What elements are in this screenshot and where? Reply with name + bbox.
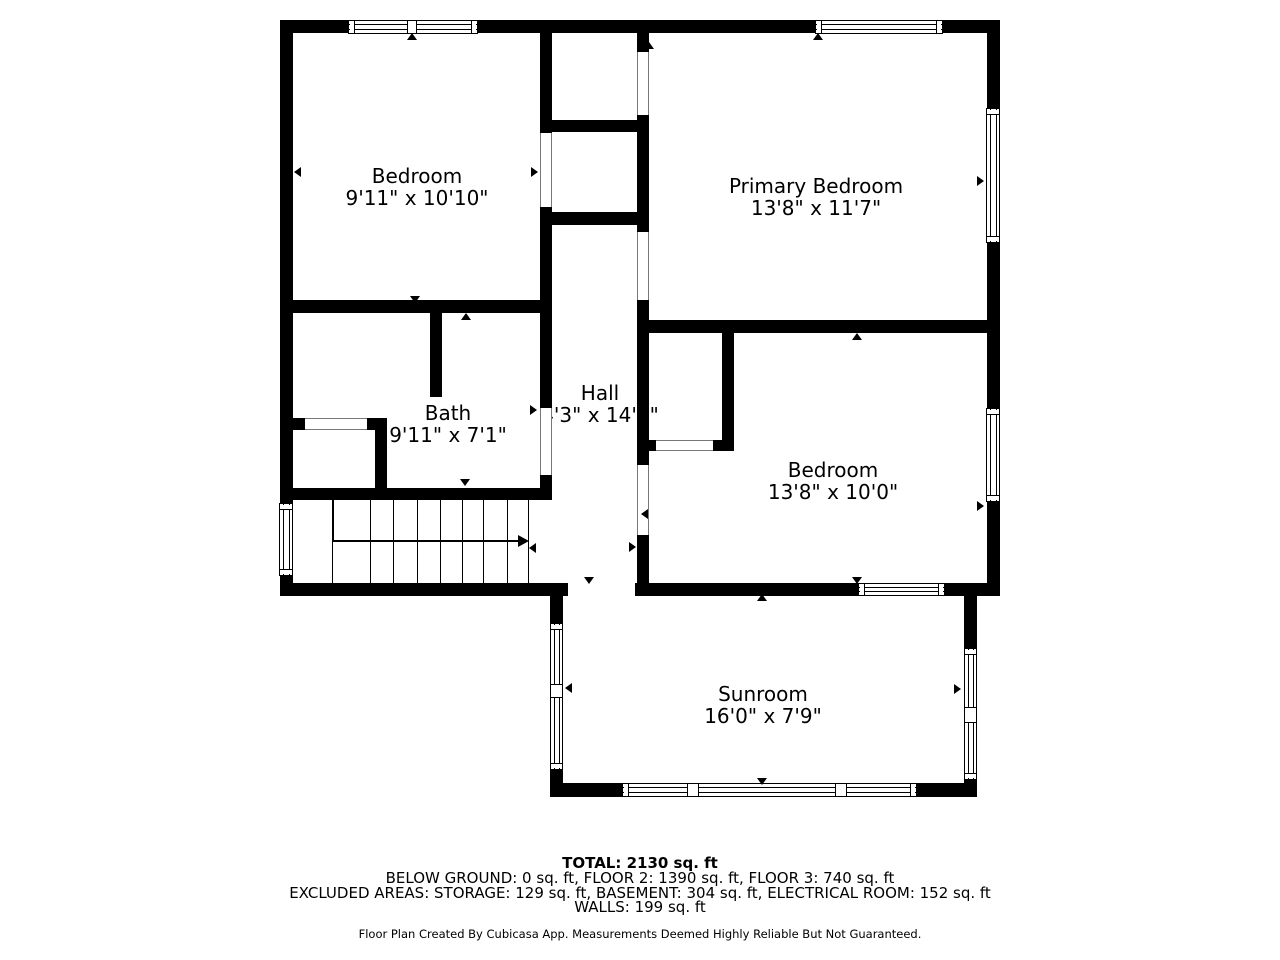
window-frame — [936, 21, 941, 33]
wall-segment — [648, 440, 656, 451]
measurement-arrow — [977, 176, 984, 186]
measurement-arrow — [852, 577, 862, 584]
window-frame — [938, 584, 943, 595]
door-opening — [540, 408, 552, 475]
wall-segment — [637, 535, 649, 583]
measurement-arrow — [629, 542, 636, 552]
window-frame — [860, 584, 865, 595]
room-label-primary-bedroom: Primary Bedroom 13'8" x 11'7" — [729, 175, 903, 219]
wall-segment — [550, 783, 622, 797]
wall-segment — [987, 20, 1000, 596]
floor-plan: Bedroom 9'11" x 10'10" Primary Bedroom 1… — [0, 0, 1280, 960]
wall-segment — [713, 440, 733, 451]
window — [986, 408, 1000, 502]
wall-segment — [293, 418, 305, 430]
measurement-arrow — [757, 594, 767, 601]
wall-segment — [964, 595, 977, 652]
measurement-arrow — [584, 577, 594, 584]
window — [986, 108, 1000, 243]
door-opening — [637, 232, 649, 300]
measurement-arrow — [410, 296, 420, 303]
measurement-arrow — [852, 333, 862, 340]
window — [279, 503, 293, 576]
window-frame — [987, 110, 999, 115]
stair-walk-line — [332, 500, 334, 541]
wall-segment — [550, 593, 563, 623]
room-dimensions: 13'8" x 11'7" — [729, 197, 903, 219]
room-name: Bedroom — [768, 459, 898, 481]
measurement-arrow — [461, 313, 471, 320]
measurement-arrow — [294, 167, 301, 177]
window — [964, 648, 977, 780]
measurement-arrow — [757, 778, 767, 785]
wall-area: WALLS: 199 sq. ft — [0, 900, 1280, 915]
measurement-arrow — [587, 218, 597, 225]
measurement-arrow — [977, 501, 984, 511]
wall-segment — [293, 300, 552, 313]
measurement-arrow — [529, 543, 536, 553]
window-frame — [551, 763, 562, 768]
window — [858, 583, 945, 596]
window-frame — [987, 410, 999, 415]
window-frame — [987, 495, 999, 500]
measurement-arrow — [814, 321, 824, 328]
wall-segment — [635, 583, 1000, 596]
area-summary: TOTAL: 2130 sq. ft BELOW GROUND: 0 sq. f… — [0, 856, 1280, 915]
window-frame — [817, 21, 822, 33]
window-frame — [965, 773, 976, 778]
window — [815, 20, 943, 34]
measurement-arrow — [954, 684, 961, 694]
measurement-arrow — [460, 479, 470, 486]
window-mullion — [687, 784, 699, 796]
wall-segment — [293, 488, 552, 500]
wall-segment — [280, 583, 568, 596]
window-frame — [280, 505, 292, 510]
credit-note: Floor Plan Created By Cubicasa App. Meas… — [0, 927, 1280, 941]
measurement-arrow — [813, 33, 823, 40]
window-frame — [965, 650, 976, 655]
window-frame — [280, 569, 292, 574]
measurement-arrow — [641, 509, 648, 519]
room-label-bedroom-2: Bedroom 13'8" x 10'0" — [768, 459, 898, 503]
room-name: Bedroom — [345, 165, 488, 187]
measurement-arrow — [407, 33, 417, 40]
door-opening — [540, 133, 552, 207]
door-opening — [305, 418, 367, 430]
door-opening — [637, 52, 649, 115]
room-label-bedroom-1: Bedroom 9'11" x 10'10" — [345, 165, 488, 209]
wall-segment — [540, 120, 649, 132]
window-frame — [987, 236, 999, 241]
room-dimensions: 9'11" x 10'10" — [345, 187, 488, 209]
room-dimensions: 9'11" x 7'1" — [389, 424, 507, 446]
wall-segment — [917, 783, 977, 797]
wall-segment — [430, 313, 442, 397]
window-mullion — [551, 684, 562, 698]
room-dimensions: 13'8" x 10'0" — [768, 481, 898, 503]
measurement-arrow — [531, 167, 538, 177]
window-frame — [551, 625, 562, 630]
room-dimensions: 16'0" x 7'9" — [704, 705, 822, 727]
window-mullion — [407, 21, 417, 33]
window-mullion — [835, 784, 847, 796]
window-frame — [624, 784, 629, 796]
window-frame — [350, 21, 355, 33]
window — [348, 20, 478, 34]
stair-direction-arrow — [518, 535, 529, 547]
window-mullion — [965, 707, 976, 723]
door-opening — [656, 440, 713, 451]
window — [550, 623, 563, 770]
room-label-sunroom: Sunroom 16'0" x 7'9" — [704, 683, 822, 727]
measurement-arrow — [565, 683, 572, 693]
room-name: Sunroom — [704, 683, 822, 705]
wall-segment — [375, 427, 387, 490]
measurement-arrow — [644, 42, 654, 49]
room-name: Bath — [389, 402, 507, 424]
window-frame — [910, 784, 915, 796]
stair-walk-line — [332, 540, 520, 542]
room-name: Primary Bedroom — [729, 175, 903, 197]
door-opening — [637, 465, 649, 535]
wall-segment — [722, 333, 734, 451]
measurement-arrow — [461, 587, 471, 594]
measurement-arrow — [530, 405, 537, 415]
room-label-bath: Bath 9'11" x 7'1" — [389, 402, 507, 446]
window-frame — [471, 21, 476, 33]
wall-segment — [540, 33, 552, 133]
window — [622, 783, 917, 797]
